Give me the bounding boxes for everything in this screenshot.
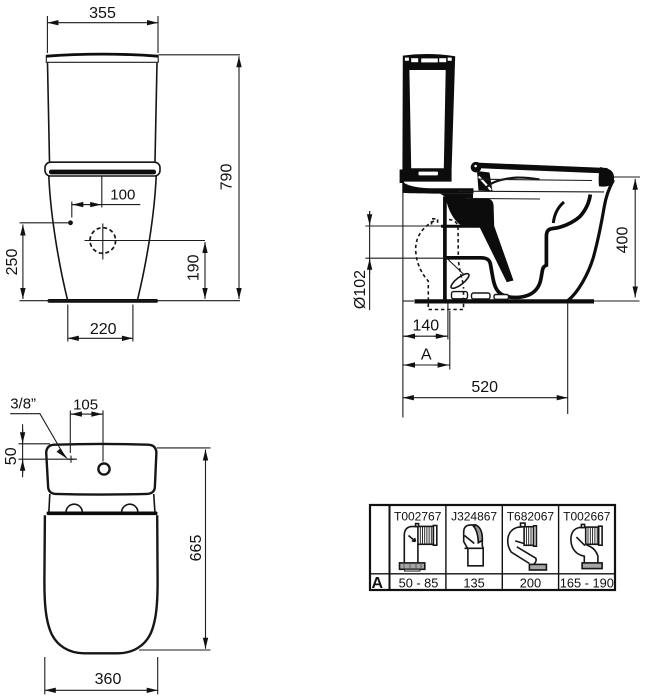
svg-text:250: 250 — [4, 249, 21, 276]
svg-text:220: 220 — [90, 321, 117, 338]
svg-text:790: 790 — [219, 164, 236, 191]
svg-text:400: 400 — [615, 227, 632, 254]
svg-text:A: A — [372, 575, 384, 592]
svg-text:135: 135 — [463, 576, 484, 591]
svg-text:50 - 85: 50 - 85 — [399, 576, 439, 591]
svg-text:105: 105 — [73, 396, 98, 413]
svg-text:200: 200 — [520, 576, 541, 591]
svg-text:T002767: T002767 — [394, 509, 442, 523]
svg-text:100: 100 — [110, 186, 135, 203]
svg-text:190: 190 — [186, 254, 203, 281]
svg-text:T682067: T682067 — [507, 509, 555, 523]
svg-text:355: 355 — [89, 5, 116, 22]
svg-text:165 - 190: 165 - 190 — [560, 576, 614, 591]
svg-text:T002667: T002667 — [563, 509, 611, 523]
svg-text:360: 360 — [95, 671, 122, 688]
svg-text:140: 140 — [412, 318, 439, 335]
svg-text:A: A — [421, 347, 432, 364]
svg-text:665: 665 — [188, 535, 205, 562]
svg-text:3/8”: 3/8” — [10, 396, 36, 413]
svg-text:J324867: J324867 — [451, 509, 497, 523]
svg-text:50: 50 — [3, 447, 20, 465]
svg-text:Ø102: Ø102 — [352, 270, 369, 309]
svg-text:520: 520 — [471, 379, 498, 396]
